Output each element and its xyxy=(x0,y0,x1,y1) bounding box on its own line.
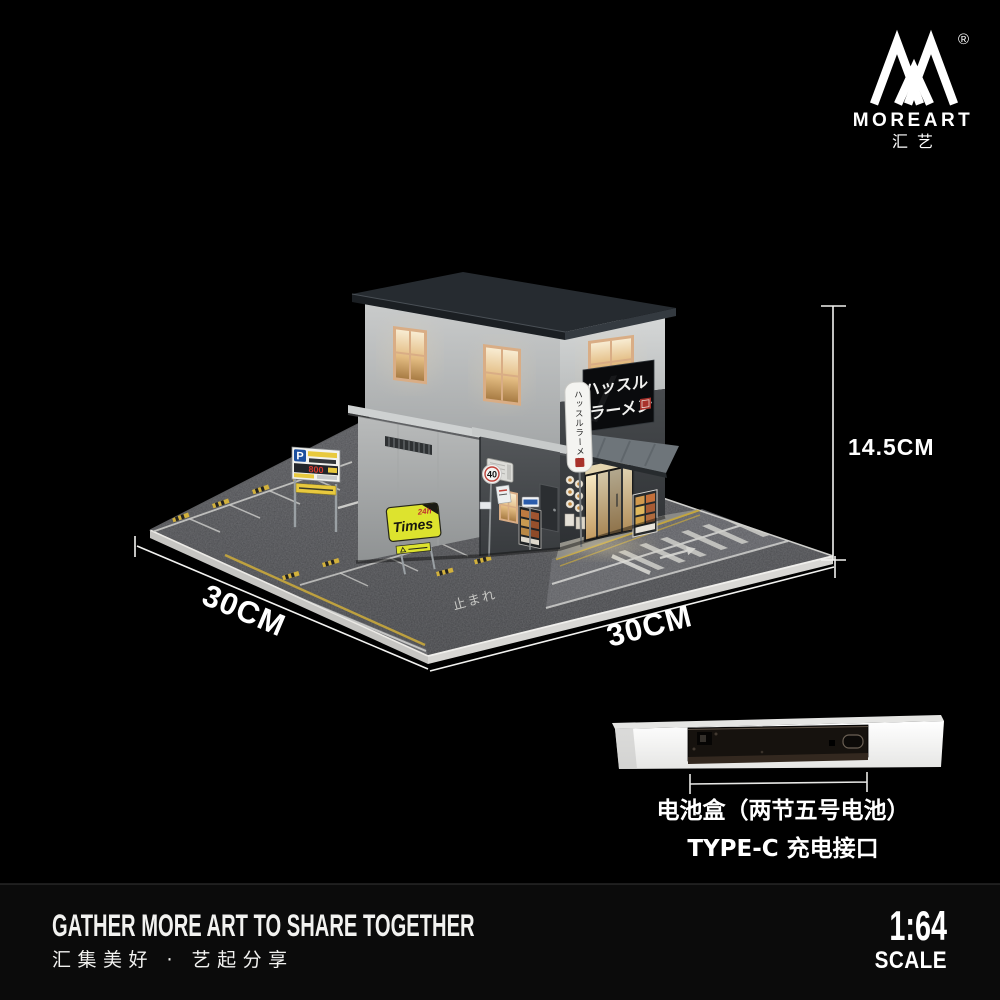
poster-scene: 止まれ xyxy=(0,0,1000,1000)
parking-price: 800 xyxy=(308,464,323,475)
battery-caption-2: TYPE-C 充电接口 xyxy=(687,835,878,862)
type-c-port xyxy=(843,735,863,748)
registered-mark: ® xyxy=(958,31,969,48)
window-upper-1 xyxy=(393,326,427,384)
vertical-sign-stamp xyxy=(575,458,584,467)
battery-compartment xyxy=(688,725,868,764)
shop-signboard: ハッスル ラーメン xyxy=(583,360,654,432)
parking-p-letter: P xyxy=(296,450,303,462)
window-upper-2 xyxy=(483,344,521,406)
footer-slogan-cn: 汇集美好 · 艺起分享 xyxy=(52,949,294,971)
brand-name-cn: 汇艺 xyxy=(892,132,942,151)
speed-sign-text: 40 xyxy=(487,470,497,480)
battery-caption-1: 电池盒（两节五号电池） xyxy=(657,797,910,824)
battery-bracket xyxy=(690,772,867,794)
storefront-door xyxy=(610,469,621,534)
shop-side-door xyxy=(540,484,558,532)
garage-wall xyxy=(358,416,480,562)
poster-canvas: 止まれ xyxy=(0,0,1000,1000)
footer-scale-label: SCALE xyxy=(875,947,947,974)
brand-name: MOREART xyxy=(853,110,974,131)
moreart-mountain-icon xyxy=(874,42,954,104)
menu-stand-right xyxy=(633,490,657,537)
dim-height-label: 14.5CM xyxy=(848,434,935,460)
footer-bar: GATHER MORE ART TO SHARE TOGETHER 汇集美好 ·… xyxy=(0,884,1000,1000)
footer-slogan-en: GATHER MORE ART TO SHARE TOGETHER xyxy=(52,907,475,943)
dim-height xyxy=(821,306,846,560)
battery-box-figure xyxy=(612,715,944,794)
footer-scale-ratio: 1:64 xyxy=(889,903,947,949)
brand-logo: ® MOREART 汇艺 xyxy=(853,31,974,151)
